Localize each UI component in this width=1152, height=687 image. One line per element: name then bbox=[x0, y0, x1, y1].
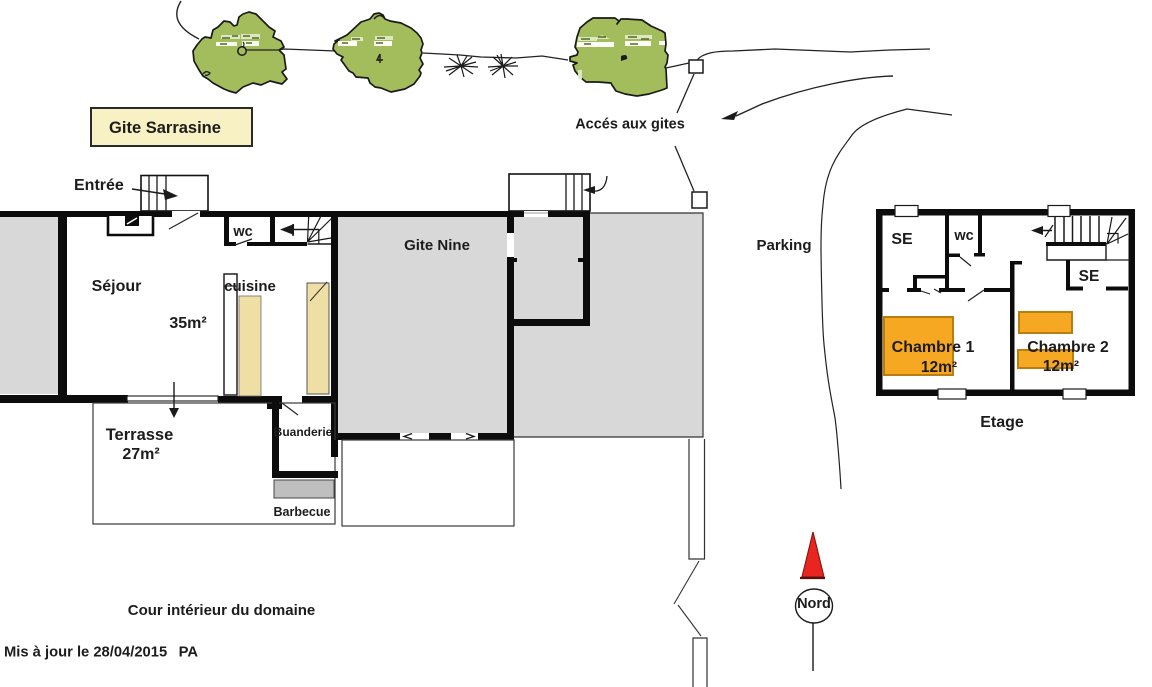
svg-text:Entrée: Entrée bbox=[74, 177, 124, 194]
svg-text:Barbecue: Barbecue bbox=[274, 505, 331, 519]
svg-text:Gite Nine: Gite Nine bbox=[404, 237, 470, 254]
svg-text:SE: SE bbox=[1079, 268, 1100, 285]
svg-text:wc: wc bbox=[953, 228, 973, 244]
svg-text:Buanderie: Buanderie bbox=[274, 425, 333, 439]
svg-text:27m²: 27m² bbox=[122, 446, 159, 463]
svg-text:cuisine: cuisine bbox=[224, 278, 276, 295]
svg-text:Chambre 2: Chambre 2 bbox=[1027, 339, 1109, 356]
svg-text:12m²: 12m² bbox=[1043, 358, 1079, 375]
svg-text:Cour intérieur du domaine: Cour intérieur du domaine bbox=[128, 602, 316, 619]
svg-text:Etage: Etage bbox=[980, 414, 1024, 431]
svg-text:wc: wc bbox=[232, 224, 252, 240]
svg-text:Nord: Nord bbox=[797, 596, 831, 612]
svg-text:Chambre 1: Chambre 1 bbox=[892, 339, 975, 356]
svg-text:SE: SE bbox=[891, 231, 913, 248]
svg-text:Terrasse: Terrasse bbox=[106, 426, 174, 444]
svg-text:Gite Sarrasine: Gite Sarrasine bbox=[109, 119, 221, 137]
svg-text:Parking: Parking bbox=[756, 237, 811, 254]
svg-text:35m²: 35m² bbox=[169, 315, 206, 332]
svg-text:Accés aux gites: Accés aux gites bbox=[575, 117, 685, 133]
svg-text:12m²: 12m² bbox=[921, 359, 957, 376]
svg-text:Mis à jour le 28/04/2015 PA: Mis à jour le 28/04/2015 PA bbox=[4, 645, 198, 661]
svg-text:Séjour: Séjour bbox=[92, 278, 142, 295]
